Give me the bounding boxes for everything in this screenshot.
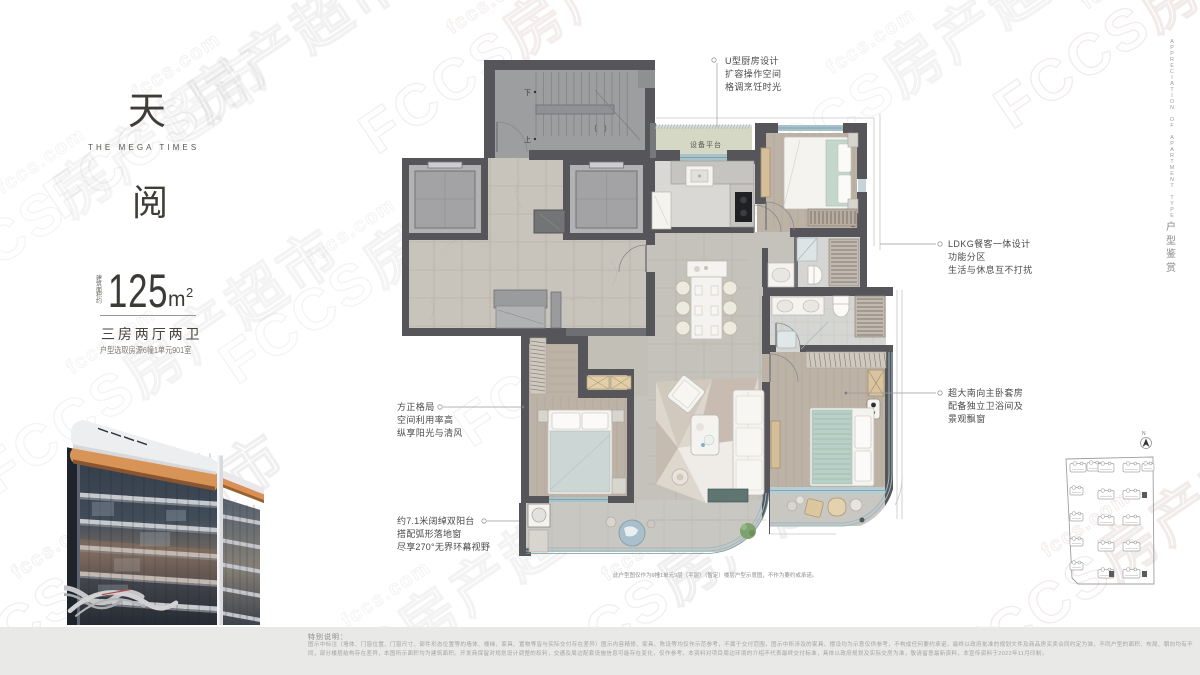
svg-text:上: 上 — [524, 135, 531, 144]
svg-text:方正格局: 方正格局 — [397, 401, 435, 412]
svg-text:超大南向主卧套房: 超大南向主卧套房 — [948, 387, 1023, 398]
svg-text:U型厨房设计: U型厨房设计 — [725, 55, 779, 66]
svg-text:N: N — [1142, 431, 1146, 437]
svg-text:空间利用率高: 空间利用率高 — [397, 414, 453, 425]
svg-text:搭配弧形落地窗: 搭配弧形落地窗 — [397, 528, 461, 539]
svg-text:⟩: ⟩ — [604, 124, 607, 133]
svg-text:功能分区: 功能分区 — [948, 251, 986, 262]
svg-text:⟨: ⟨ — [594, 124, 597, 133]
svg-text:纵享阳光与清风: 纵享阳光与清风 — [397, 427, 463, 438]
svg-text:约7.1米阔绰双阳台: 约7.1米阔绰双阳台 — [397, 515, 475, 526]
svg-text:生活与休息互不打扰: 生活与休息互不打扰 — [948, 264, 1033, 275]
svg-text:景观飘窗: 景观飘窗 — [948, 413, 986, 424]
svg-text:LDKG餐客一体设计: LDKG餐客一体设计 — [948, 238, 1031, 249]
svg-text:此户型图仅作为6幢1单元9层（平层）（暂定）楼层户型示意图，: 此户型图仅作为6幢1单元9层（平层）（暂定）楼层户型示意图，不作为要约或承诺。 — [613, 571, 817, 579]
svg-text:尽享270°无界环幕视野: 尽享270°无界环幕视野 — [397, 541, 490, 552]
svg-text:扩容操作空间: 扩容操作空间 — [725, 68, 781, 79]
svg-text:设备平台: 设备平台 — [690, 140, 722, 149]
svg-text:配备独立卫浴间及: 配备独立卫浴间及 — [948, 400, 1023, 411]
svg-text:格调烹饪时光: 格调烹饪时光 — [725, 81, 781, 92]
svg-text:下: 下 — [524, 89, 531, 97]
